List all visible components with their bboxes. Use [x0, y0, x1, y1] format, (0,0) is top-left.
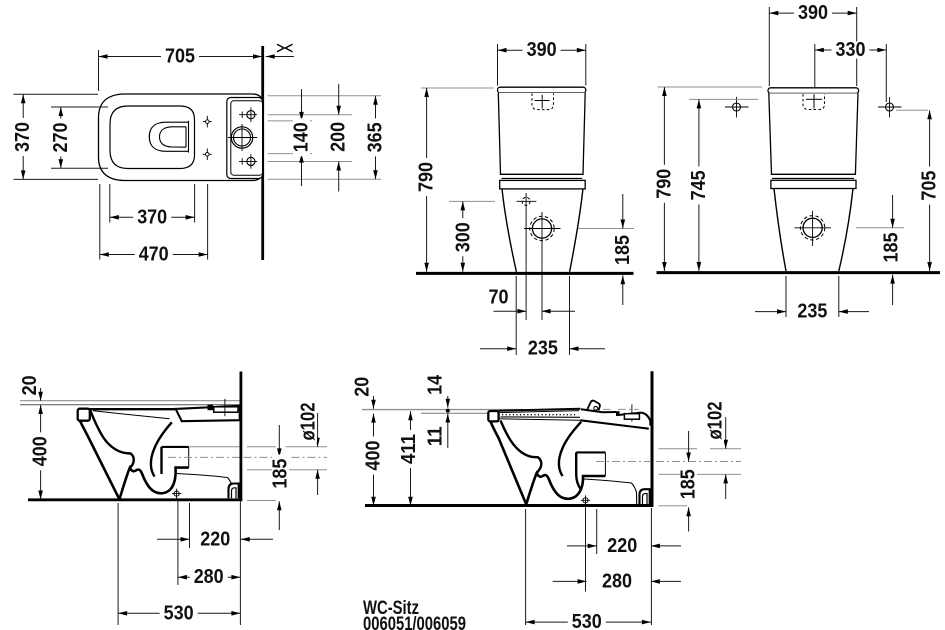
svg-text:140: 140 — [291, 122, 313, 152]
svg-text:185: 185 — [881, 233, 903, 263]
svg-text:70: 70 — [489, 287, 509, 309]
svg-text:235: 235 — [528, 338, 558, 360]
svg-text:370: 370 — [12, 122, 34, 152]
svg-text:530: 530 — [572, 611, 602, 630]
svg-text:220: 220 — [200, 528, 230, 550]
svg-text:ø102: ø102 — [298, 403, 320, 441]
svg-text:400: 400 — [363, 441, 385, 471]
svg-text:411: 411 — [398, 434, 420, 464]
svg-text:280: 280 — [602, 570, 632, 592]
svg-text:745: 745 — [688, 170, 710, 200]
svg-text:185: 185 — [270, 459, 292, 489]
svg-text:200: 200 — [328, 122, 350, 152]
svg-text:14: 14 — [425, 374, 447, 395]
svg-text:330: 330 — [836, 39, 866, 61]
svg-text:20: 20 — [19, 375, 41, 395]
svg-text:11: 11 — [425, 426, 447, 446]
svg-text:365: 365 — [365, 122, 387, 152]
svg-text:235: 235 — [797, 301, 827, 323]
svg-text:390: 390 — [527, 39, 557, 61]
svg-text:300: 300 — [453, 222, 475, 252]
svg-text:270: 270 — [50, 123, 72, 153]
svg-text:705: 705 — [919, 171, 941, 201]
svg-text:705: 705 — [165, 46, 195, 68]
svg-text:280: 280 — [194, 566, 224, 588]
svg-text:370: 370 — [137, 206, 167, 228]
svg-text:ø102: ø102 — [705, 402, 727, 440]
svg-text:790: 790 — [416, 162, 438, 192]
svg-text:470: 470 — [139, 244, 169, 266]
svg-text:185: 185 — [678, 469, 700, 499]
svg-text:400: 400 — [30, 436, 52, 466]
svg-text:006051/006059: 006051/006059 — [363, 614, 466, 630]
svg-text:390: 390 — [798, 2, 828, 24]
svg-text:530: 530 — [164, 602, 194, 624]
svg-text:220: 220 — [607, 535, 637, 557]
svg-text:185: 185 — [612, 235, 634, 265]
svg-text:20: 20 — [352, 377, 374, 397]
svg-text:790: 790 — [653, 169, 675, 199]
